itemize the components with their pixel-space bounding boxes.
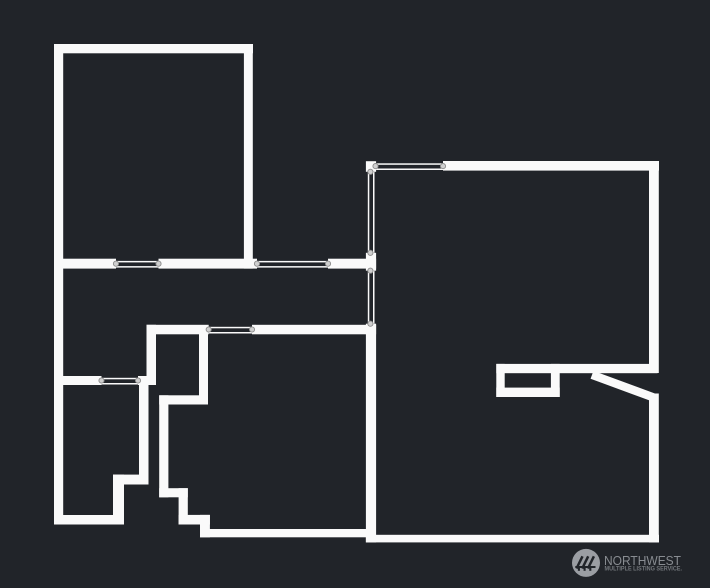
svg-text:MULTIPLE LISTING SERVICE.: MULTIPLE LISTING SERVICE. [605,566,683,573]
